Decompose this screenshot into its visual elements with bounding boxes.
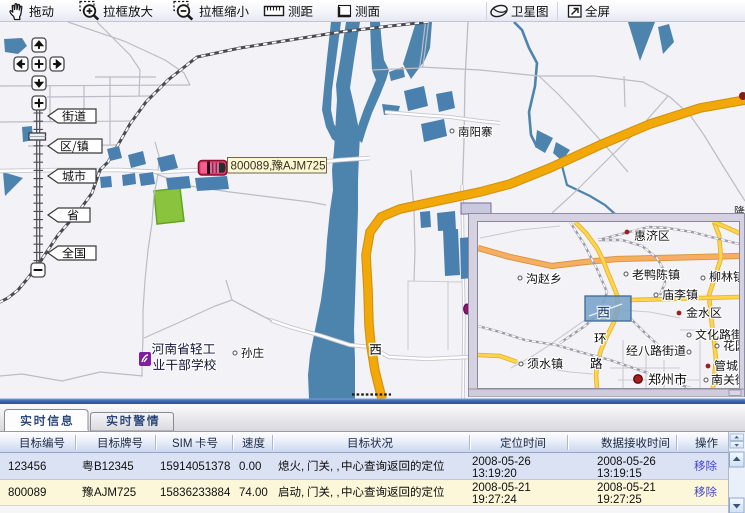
svg-text:15914051378: 15914051378: [160, 461, 230, 473]
svg-text:800089: 800089: [8, 487, 46, 499]
svg-text:19:27:24: 19:27:24: [472, 494, 517, 506]
svg-text:SIM: SIM: [172, 438, 192, 450]
svg-text:15836233884: 15836233884: [160, 487, 231, 499]
svg-text:2008-05-26: 2008-05-26: [472, 456, 531, 468]
svg-text:0.00: 0.00: [239, 461, 261, 473]
svg-text:,: ,: [301, 487, 304, 499]
svg-text:74.00: 74.00: [239, 487, 268, 499]
svg-text:800089,: 800089,: [231, 160, 273, 173]
svg-text:2008-05-21: 2008-05-21: [472, 482, 531, 494]
svg-text:, ,: , ,: [330, 487, 340, 499]
svg-text:AJM725: AJM725: [94, 487, 136, 499]
svg-text:2008-05-21: 2008-05-21: [597, 482, 656, 494]
svg-text:B12345: B12345: [94, 461, 134, 473]
svg-text:13:19:15: 13:19:15: [597, 468, 642, 480]
svg-text:2008-05-26: 2008-05-26: [597, 456, 656, 468]
svg-text:13:19:20: 13:19:20: [472, 468, 517, 480]
svg-text:123456: 123456: [8, 461, 46, 473]
svg-text:AJM725: AJM725: [283, 160, 326, 173]
svg-text:, ,: , ,: [330, 461, 340, 473]
svg-text:,: ,: [301, 461, 304, 473]
svg-text:19:27:25: 19:27:25: [597, 494, 642, 506]
